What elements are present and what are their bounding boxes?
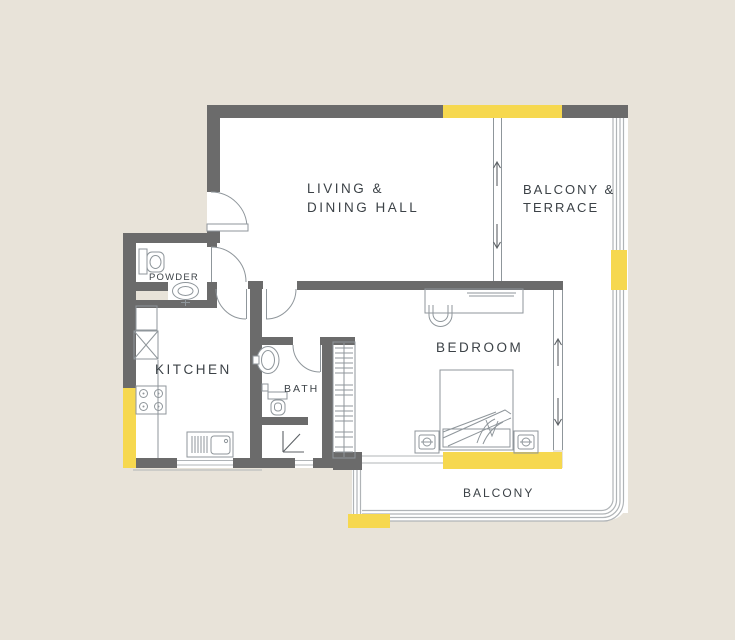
wall-powder-top — [123, 233, 220, 243]
wall-powder-bottom — [136, 282, 168, 291]
wall-bath-right — [322, 337, 333, 467]
powder-label: POWDER — [149, 272, 199, 283]
bedroom-window-band — [362, 452, 443, 470]
wall-shower-bottom-l — [250, 458, 295, 468]
window-balcony-overlay — [348, 514, 390, 528]
wall-kitchen-bottom-l — [133, 458, 177, 468]
wall-divider — [250, 289, 262, 458]
kitchen-label: KITCHEN — [155, 362, 232, 377]
wall-bedroom-bottom — [333, 452, 362, 470]
partition-channel — [493, 118, 502, 281]
kitchen-sink — [187, 432, 233, 457]
kitchen-opening — [217, 281, 248, 289]
wall-door-post — [248, 281, 263, 289]
window-top — [443, 105, 562, 118]
wall-bath-bottom — [250, 417, 308, 425]
wall-powder-left — [123, 233, 136, 308]
wall-powder-right-a — [207, 243, 217, 247]
shower-window-band — [295, 458, 313, 468]
wall-top — [207, 105, 628, 118]
bedroom-label: BEDROOM — [436, 340, 523, 355]
wall-hall-bottom-l — [250, 337, 293, 345]
window-railing-overlay — [611, 250, 627, 290]
shower-opening — [308, 417, 322, 425]
terrace-label-line2: TERRACE — [523, 200, 599, 215]
bath-label: BATH — [284, 383, 319, 395]
living-label-line1: LIVING & — [307, 181, 384, 196]
wall-left-upper — [207, 105, 220, 192]
kitchen-window-band — [177, 458, 233, 468]
living-label-line2: DINING HALL — [307, 200, 419, 215]
terrace-label-line1: BALCONY & — [523, 182, 615, 197]
hall-opening — [263, 281, 297, 289]
window-bedroom — [443, 452, 562, 469]
floor-plan-page: LIVING & DINING HALL BALCONY & TERRACE P… — [0, 0, 735, 640]
balcony-label: BALCONY — [463, 486, 534, 500]
entry-opening — [207, 192, 220, 228]
window-kitchen — [123, 388, 136, 468]
wall-kitchen-top — [123, 300, 217, 308]
wall-shower-bottom-r — [313, 458, 333, 468]
floor-plan: LIVING & DINING HALL BALCONY & TERRACE P… — [0, 0, 735, 640]
bath-opening — [293, 337, 320, 345]
